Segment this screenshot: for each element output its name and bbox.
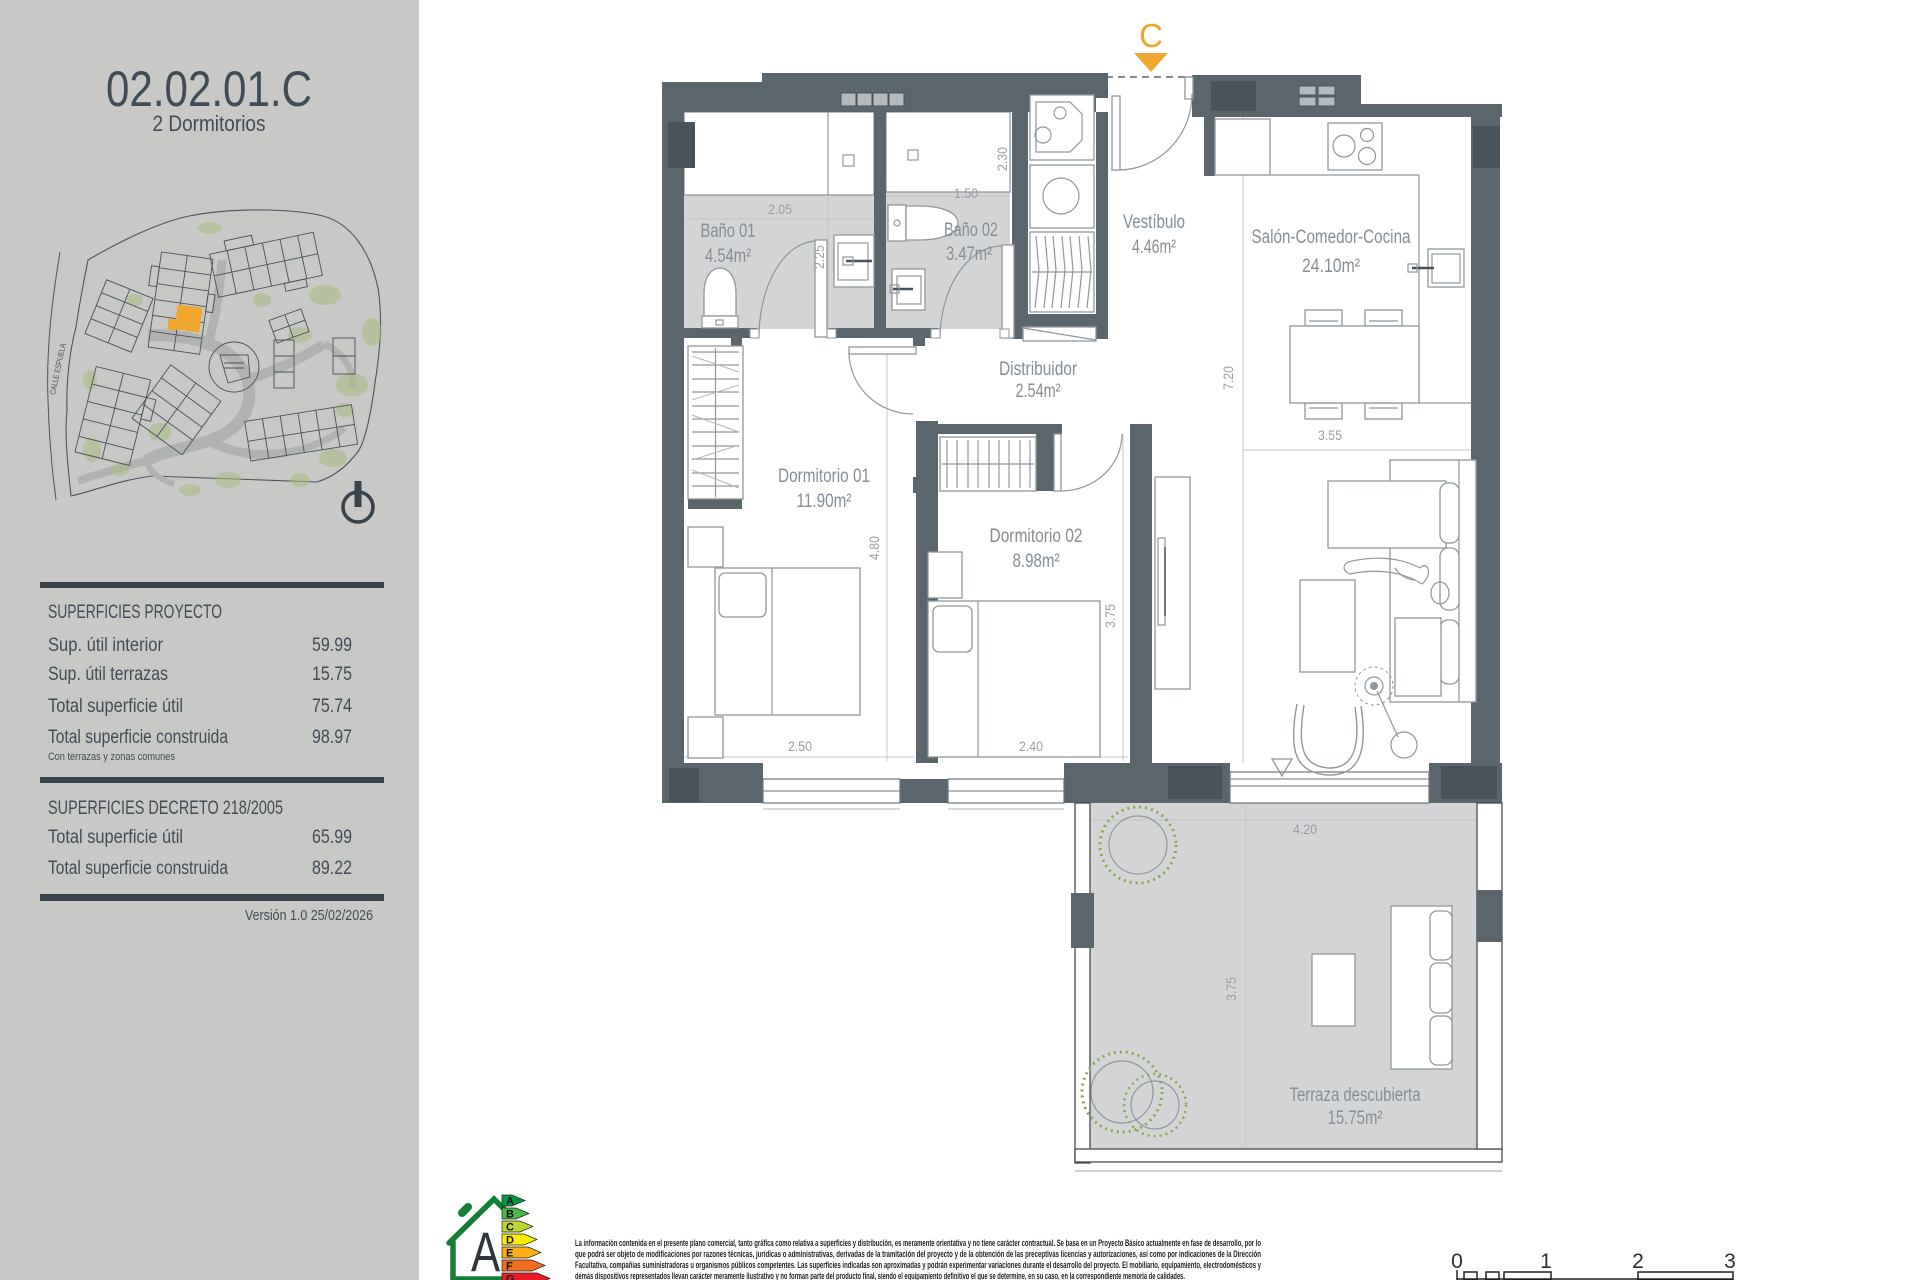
svg-text:4.20: 4.20 [1293, 821, 1317, 837]
svg-text:1.50: 1.50 [954, 185, 978, 201]
svg-text:75.74: 75.74 [312, 696, 352, 717]
svg-text:demás dispositivos representad: demás dispositivos representados llevan … [575, 1271, 1185, 1280]
svg-text:E: E [506, 1248, 513, 1260]
svg-text:Dormitorio 01: Dormitorio 01 [778, 466, 870, 487]
svg-text:2.30: 2.30 [994, 147, 1010, 171]
svg-text:Versión 1.0 25/02/2026: Versión 1.0 25/02/2026 [245, 908, 373, 924]
svg-text:C: C [506, 1222, 514, 1234]
svg-text:2.25: 2.25 [811, 245, 827, 269]
svg-text:3.75: 3.75 [1102, 604, 1118, 628]
svg-text:F: F [506, 1261, 513, 1273]
svg-text:2 Dormitorios: 2 Dormitorios [153, 111, 266, 136]
svg-text:Total superficie construida: Total superficie construida [48, 727, 228, 748]
svg-text:24.10m²: 24.10m² [1302, 256, 1360, 277]
svg-text:Baño 01: Baño 01 [701, 221, 756, 242]
svg-text:Salón-Comedor-Cocina: Salón-Comedor-Cocina [1252, 227, 1411, 248]
svg-text:Total superficie útil: Total superficie útil [48, 696, 183, 717]
svg-text:2.54m²: 2.54m² [1016, 381, 1061, 402]
svg-text:4.80: 4.80 [866, 536, 882, 560]
svg-text:Con terrazas y zonas comunes: Con terrazas y zonas comunes [48, 751, 175, 763]
svg-text:0: 0 [1451, 1250, 1463, 1273]
svg-text:65.99: 65.99 [312, 827, 352, 848]
svg-text:59.99: 59.99 [312, 635, 352, 656]
svg-text:Facultativa, compañías suminis: Facultativa, compañías suministradoras u… [575, 1260, 1261, 1271]
svg-text:4.54m²: 4.54m² [705, 246, 751, 267]
svg-text:3: 3 [1724, 1250, 1736, 1273]
svg-text:4.46m²: 4.46m² [1132, 237, 1176, 258]
svg-text:que podrá ser objeto de modifi: que podrá ser objeto de modificaciones p… [575, 1249, 1261, 1260]
svg-text:D: D [506, 1235, 514, 1247]
svg-text:Total superficie útil: Total superficie útil [48, 827, 183, 848]
svg-text:C: C [1139, 17, 1163, 54]
svg-text:98.97: 98.97 [312, 727, 352, 748]
svg-text:Dormitorio 02: Dormitorio 02 [990, 526, 1083, 547]
svg-text:Distribuidor: Distribuidor [999, 359, 1078, 380]
svg-text:02.02.01.C: 02.02.01.C [106, 61, 312, 117]
svg-text:15.75m²: 15.75m² [1328, 1108, 1383, 1129]
svg-text:A: A [506, 1196, 514, 1208]
svg-text:Vestíbulo: Vestíbulo [1123, 212, 1185, 233]
svg-text:Sup. útil terrazas: Sup. útil terrazas [48, 664, 168, 685]
svg-text:3.47m²: 3.47m² [946, 244, 992, 265]
svg-text:Sup. útil interior: Sup. útil interior [48, 635, 164, 656]
svg-text:Total superficie construida: Total superficie construida [48, 858, 228, 879]
svg-text:SUPERFICIES DECRETO 218/2005: SUPERFICIES DECRETO 218/2005 [48, 798, 283, 819]
svg-text:1: 1 [1540, 1250, 1552, 1273]
svg-text:La información contenida en el: La información contenida en el presente … [575, 1238, 1261, 1249]
svg-text:Terraza descubierta: Terraza descubierta [1290, 1085, 1421, 1106]
svg-text:2.50: 2.50 [788, 738, 812, 754]
svg-text:3.75: 3.75 [1223, 977, 1239, 1001]
svg-text:B: B [506, 1209, 514, 1221]
svg-text:15.75: 15.75 [312, 664, 352, 685]
svg-text:G: G [506, 1274, 515, 1280]
svg-text:Baño 02: Baño 02 [944, 220, 998, 241]
svg-text:SUPERFICIES PROYECTO: SUPERFICIES PROYECTO [48, 602, 222, 623]
svg-text:2.40: 2.40 [1019, 738, 1043, 754]
svg-text:A: A [471, 1221, 501, 1280]
svg-text:2: 2 [1632, 1250, 1644, 1273]
svg-text:8.98m²: 8.98m² [1013, 551, 1060, 572]
svg-text:2.05: 2.05 [768, 201, 792, 217]
svg-text:3.55: 3.55 [1318, 427, 1342, 443]
svg-text:7.20: 7.20 [1220, 366, 1236, 390]
svg-text:11.90m²: 11.90m² [797, 491, 852, 512]
svg-text:89.22: 89.22 [312, 858, 352, 879]
